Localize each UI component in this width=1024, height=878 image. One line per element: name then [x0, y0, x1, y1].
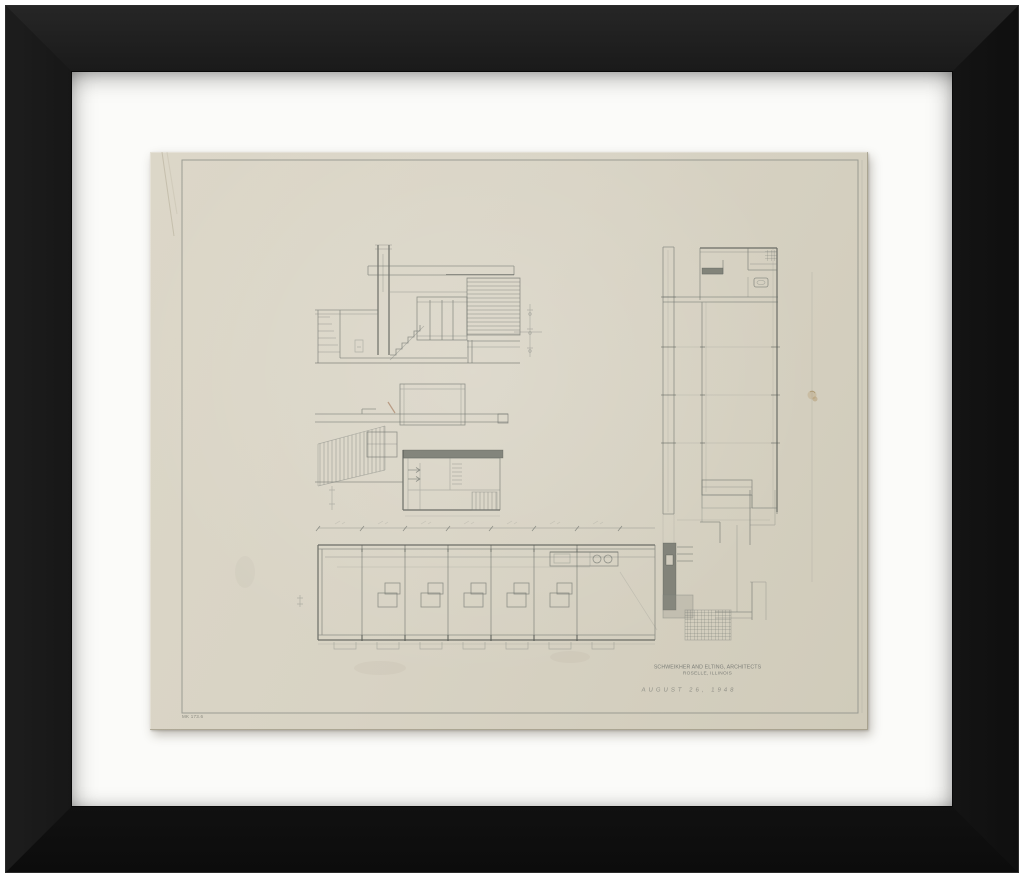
paper-blemishes: [162, 152, 818, 675]
drawing-plan-terrace: [663, 520, 770, 640]
drawing-linework: [150, 152, 868, 730]
drawing-section-upper: [315, 245, 542, 363]
stamp-firm-name: SCHWEIKHER AND ELTING, ARCHITECTS: [645, 664, 770, 670]
frame-right-rail: [952, 6, 1018, 872]
date-text: AUGUST 26, 1948: [641, 686, 782, 693]
frame-bottom-rail: [6, 806, 1018, 872]
sheet-border: [182, 160, 862, 713]
architect-stamp: SCHWEIKHER AND ELTING, ARCHITECTS ROSELL…: [645, 664, 770, 682]
margin-note: MK 173.6: [182, 714, 242, 722]
drawing-section-lower: [315, 384, 508, 516]
margin-note-text: MK 173.6: [182, 714, 242, 719]
date-inscription: AUGUST 26, 1948: [642, 686, 772, 696]
drawing-plan-lower: [297, 521, 657, 649]
drawing-sheet: SCHWEIKHER AND ELTING, ARCHITECTS ROSELL…: [150, 152, 868, 730]
picture-frame: SCHWEIKHER AND ELTING, ARCHITECTS ROSELL…: [6, 6, 1018, 872]
frame-left-rail: [6, 6, 72, 872]
drawing-plan-upper: [661, 247, 780, 545]
stamp-location: ROSELLE, ILLINOIS: [645, 671, 770, 677]
mat-board: SCHWEIKHER AND ELTING, ARCHITECTS ROSELL…: [72, 72, 952, 806]
frame-top-rail: [6, 6, 1018, 72]
framed-artwork: SCHWEIKHER AND ELTING, ARCHITECTS ROSELL…: [0, 0, 1024, 878]
